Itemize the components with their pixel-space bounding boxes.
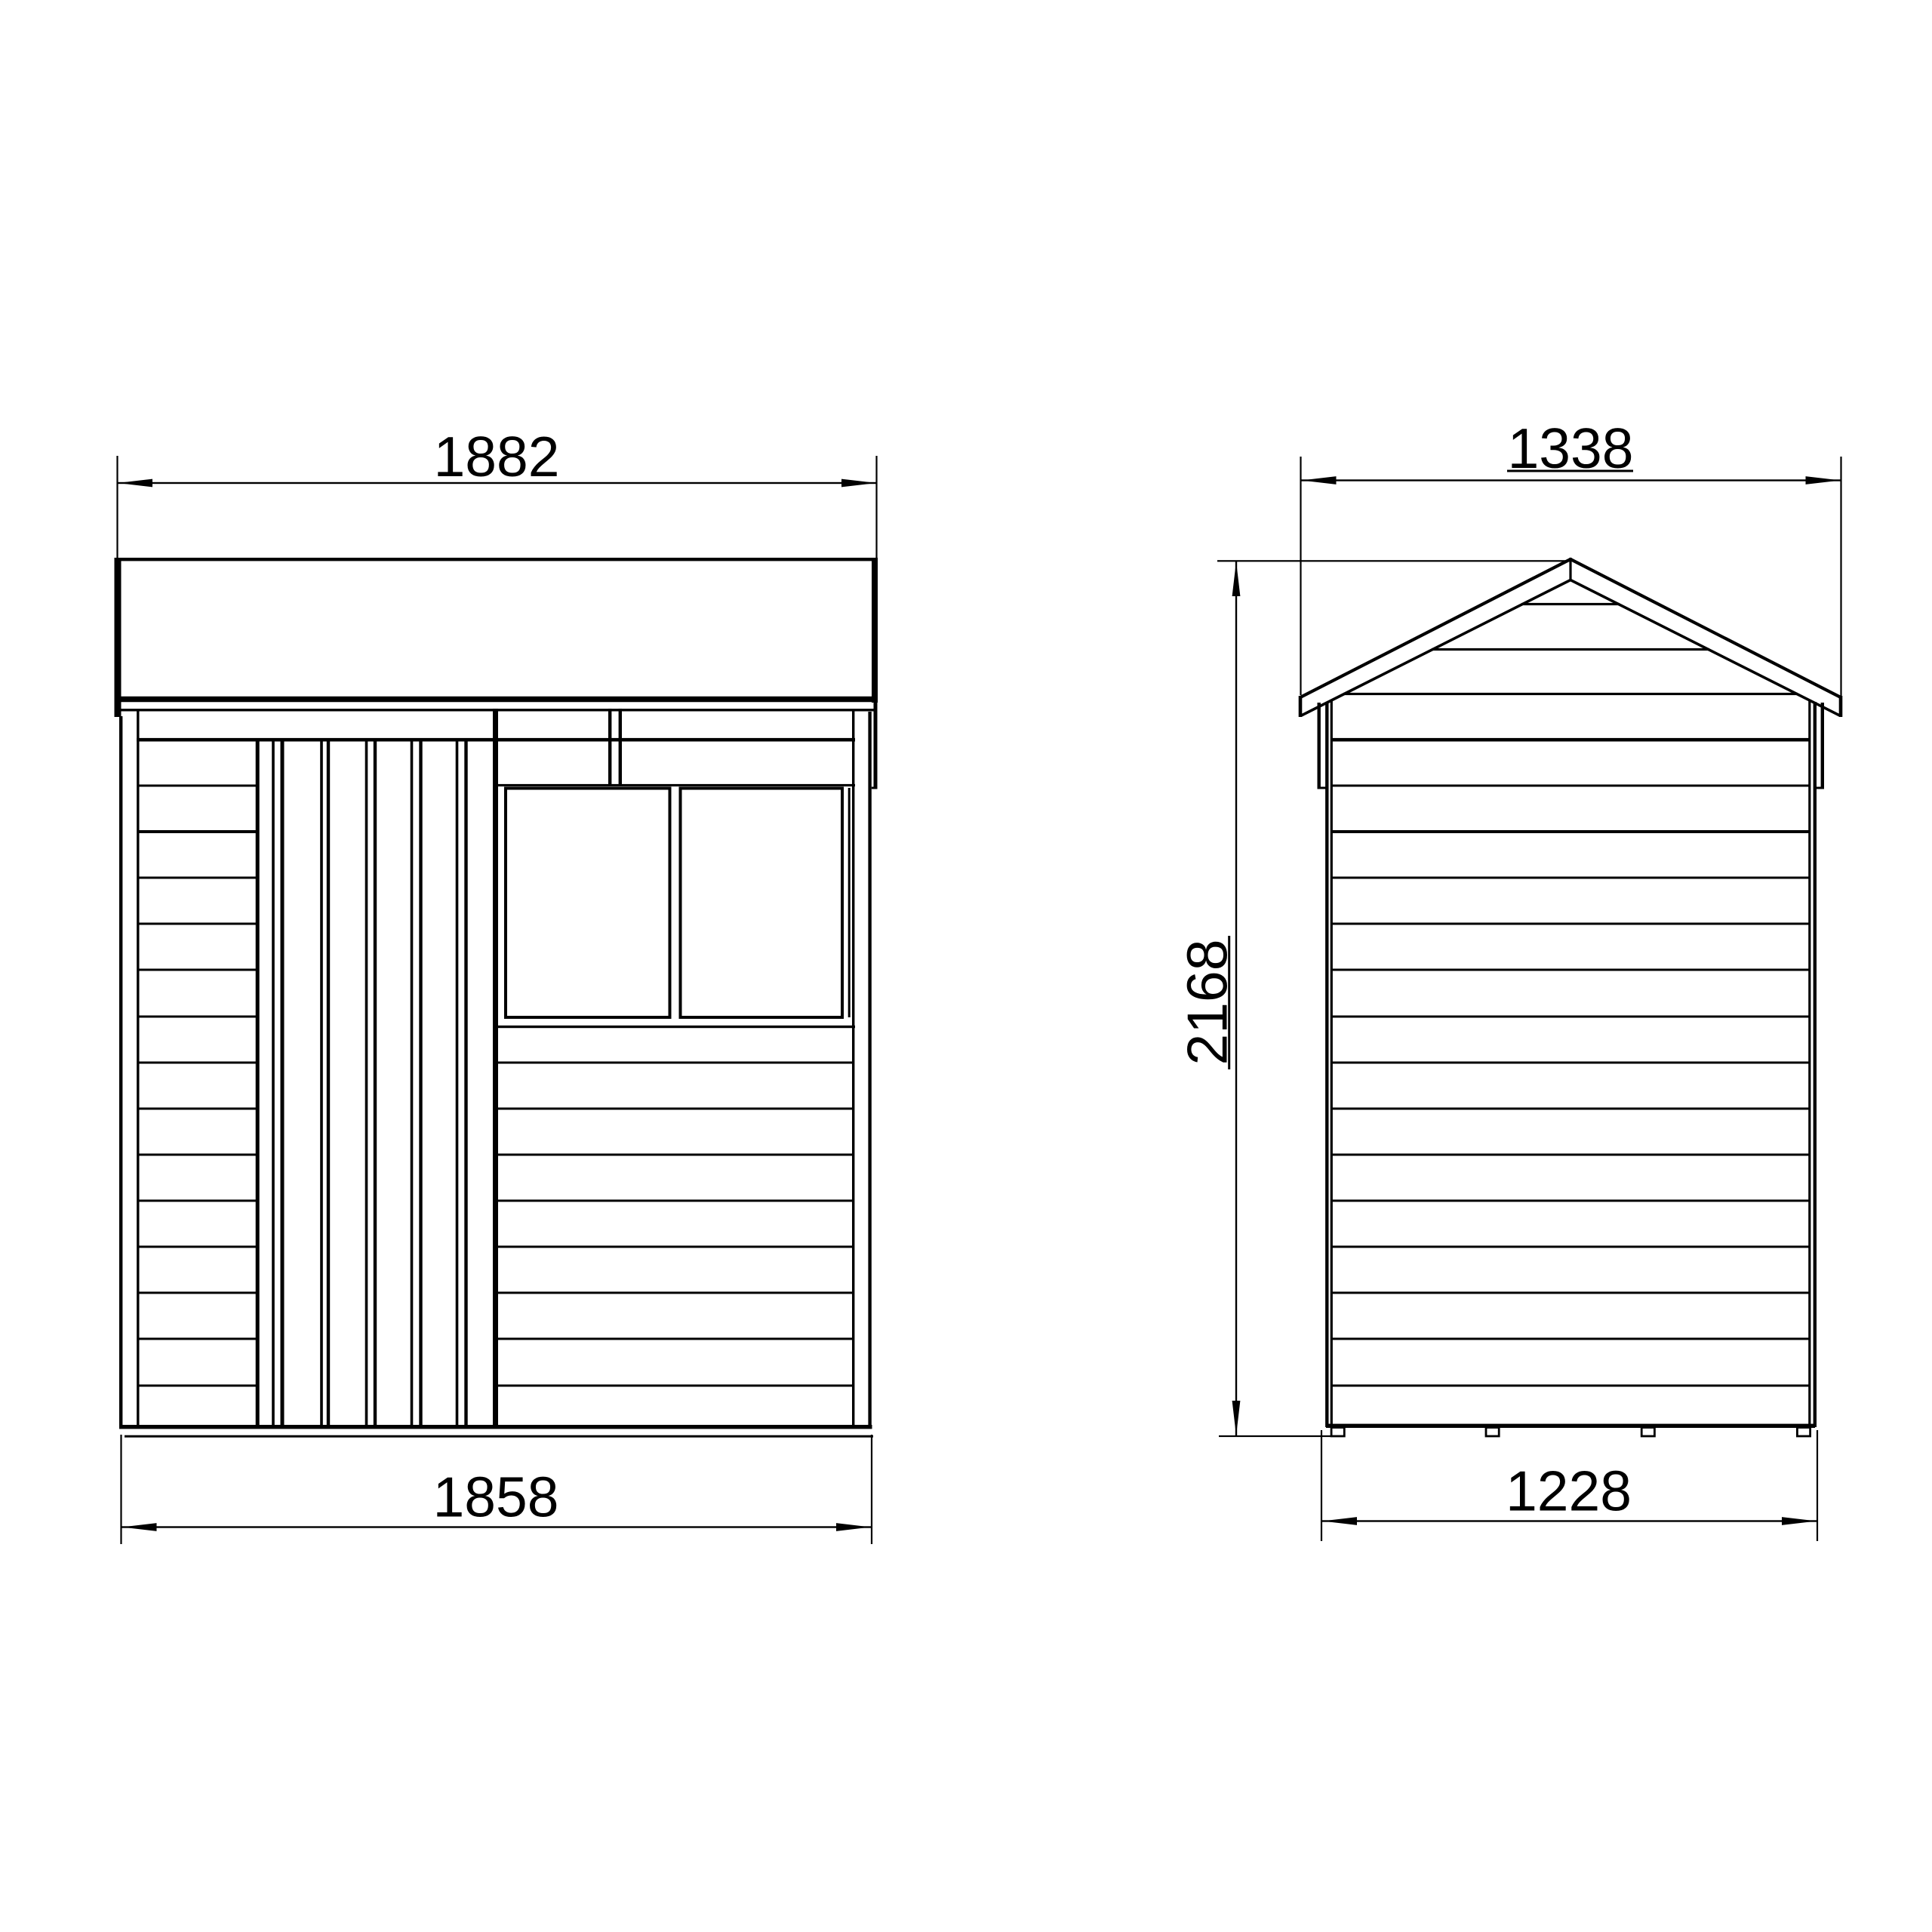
svg-text:1858: 1858 bbox=[433, 1466, 559, 1529]
svg-text:1882: 1882 bbox=[434, 425, 560, 488]
svg-text:1228: 1228 bbox=[1506, 1460, 1632, 1523]
